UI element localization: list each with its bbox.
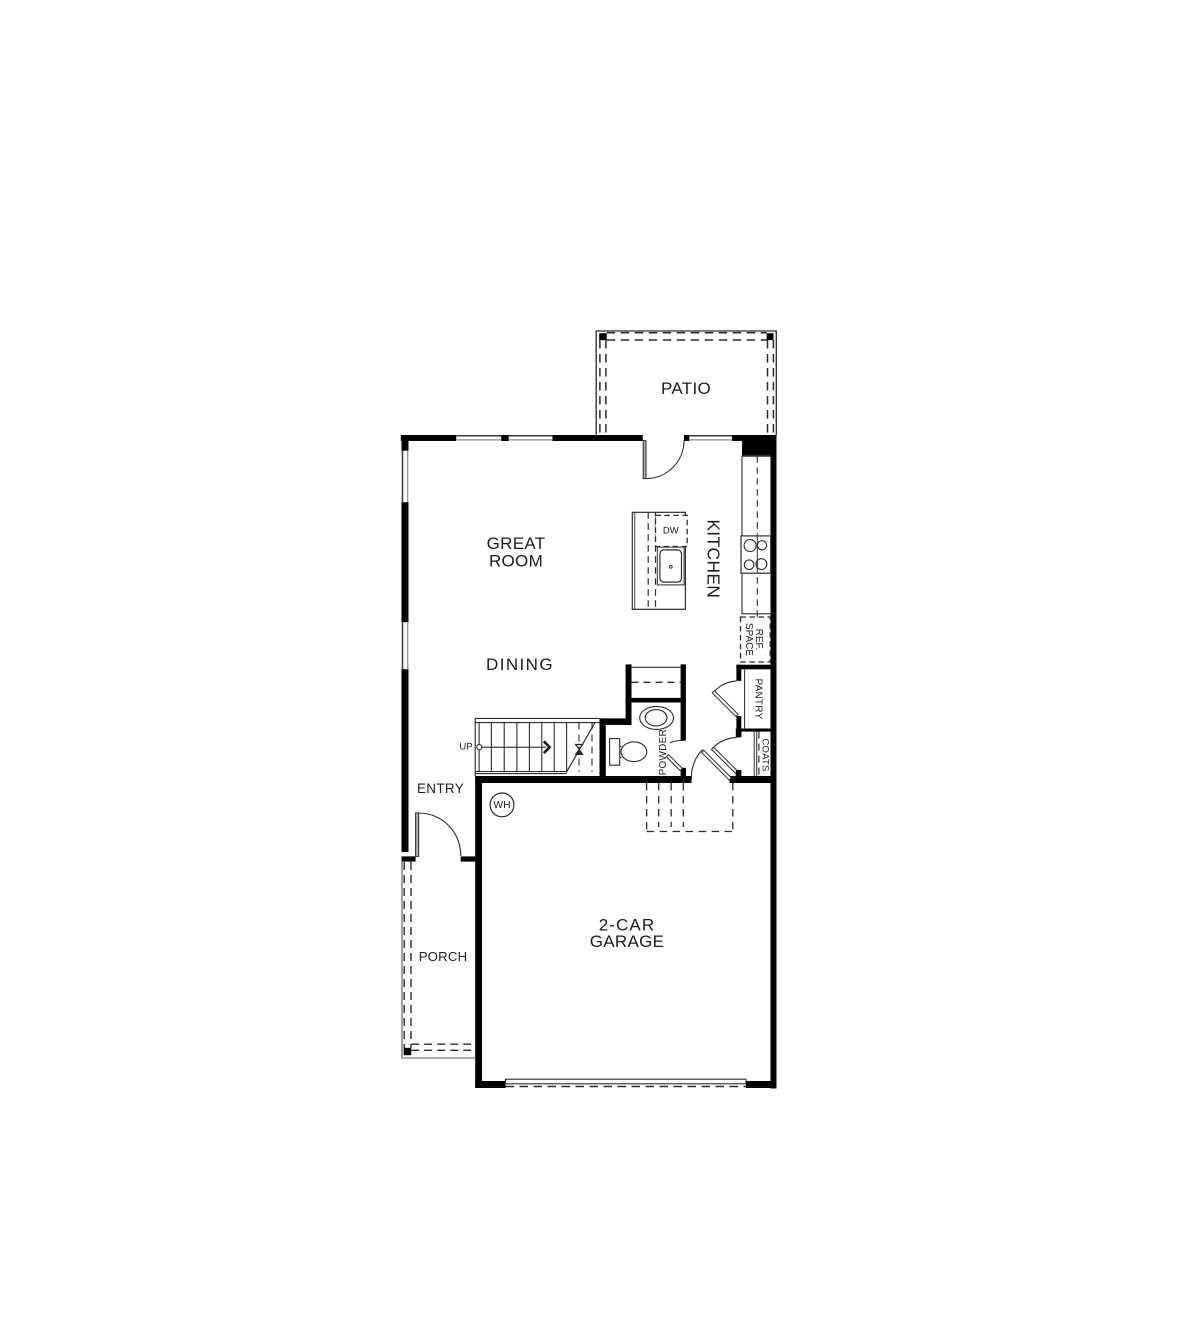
svg-text:POWDER: POWDER xyxy=(658,729,669,775)
svg-text:UP: UP xyxy=(459,742,472,753)
svg-text:ENTRY: ENTRY xyxy=(417,781,464,796)
svg-text:PANTRY: PANTRY xyxy=(752,678,763,719)
svg-text:ROOM: ROOM xyxy=(489,552,543,571)
svg-text:GARAGE: GARAGE xyxy=(590,932,665,951)
svg-text:KITCHEN: KITCHEN xyxy=(704,519,724,598)
svg-text:DW: DW xyxy=(663,526,679,537)
svg-text:GREAT: GREAT xyxy=(487,534,546,553)
svg-text:DINING: DINING xyxy=(486,655,554,674)
svg-text:PATIO: PATIO xyxy=(661,379,711,398)
svg-text:PORCH: PORCH xyxy=(419,949,468,964)
svg-text:WH: WH xyxy=(493,800,510,811)
svg-text:COATS: COATS xyxy=(759,738,770,771)
